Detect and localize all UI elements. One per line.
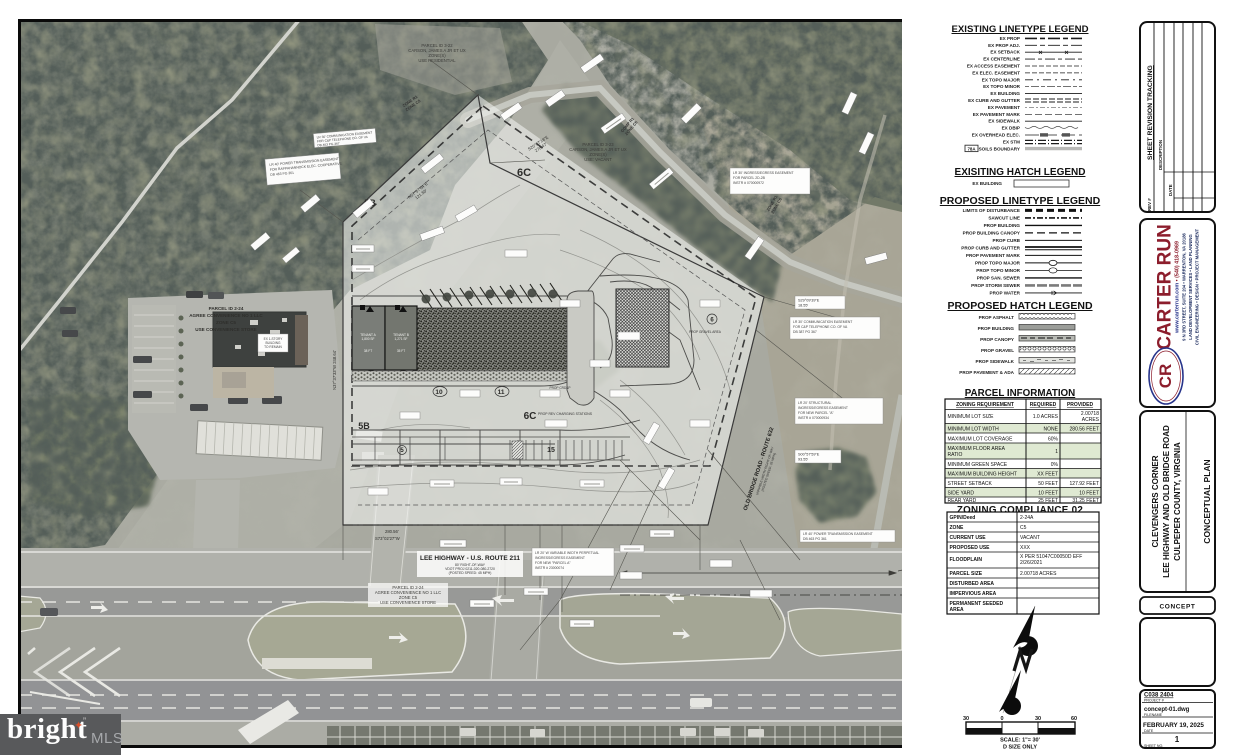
svg-text:PROP WATER: PROP WATER <box>990 291 1021 296</box>
svg-text:EX PROP: EX PROP <box>1000 36 1020 41</box>
svg-text:IMPERVIOUS AREA: IMPERVIOUS AREA <box>950 591 997 597</box>
svg-text:MINIMUM LOT SIZE: MINIMUM LOT SIZE <box>948 414 995 420</box>
svg-text:PROP CURB: PROP CURB <box>993 238 1021 243</box>
svg-text:www.carterrun.com • (540) 418-: www.carterrun.com • (540) 418-0969 <box>1175 241 1181 334</box>
svg-text:MINIMUM GREEN SPACE: MINIMUM GREEN SPACE <box>948 462 1008 468</box>
svg-text:10 FEET: 10 FEET <box>1079 491 1099 497</box>
svg-text:PROP STORM SEWER: PROP STORM SEWER <box>971 283 1021 288</box>
svg-text:SAWCUT LINE: SAWCUT LINE <box>988 216 1020 221</box>
svg-text:C5: C5 <box>1020 525 1027 531</box>
svg-text:2.00718 ACRES: 2.00718 ACRES <box>1020 571 1057 577</box>
svg-text:60: 60 <box>1071 716 1077 722</box>
svg-text:REQUIRED: REQUIRED <box>1030 402 1057 408</box>
svg-text:EX SETBACK: EX SETBACK <box>990 50 1020 55</box>
svg-text:PROP TOPO MAJOR: PROP TOPO MAJOR <box>975 261 1021 266</box>
svg-text:2/26/2021: 2/26/2021 <box>1020 560 1042 566</box>
svg-text:EX SIDEWALK: EX SIDEWALK <box>988 119 1020 124</box>
svg-text:MAXIMUM LOT COVERAGE: MAXIMUM LOT COVERAGE <box>948 437 1014 443</box>
svg-text:EX TOPO MINOR: EX TOPO MINOR <box>983 84 1021 89</box>
svg-text:PROP BUILDING: PROP BUILDING <box>978 326 1015 331</box>
svg-text:FILENAME: FILENAME <box>1144 713 1163 717</box>
svg-text:PROP ASPHALT: PROP ASPHALT <box>979 315 1015 320</box>
svg-text:2-24A: 2-24A <box>1020 515 1034 521</box>
svg-text:DATE: DATE <box>1144 729 1154 733</box>
svg-text:NONE: NONE <box>1044 427 1059 433</box>
svg-text:EX PAVEMENT MARK: EX PAVEMENT MARK <box>973 112 1021 117</box>
svg-text:PROP CANOPY: PROP CANOPY <box>980 337 1014 342</box>
svg-text:CURRENT USE: CURRENT USE <box>950 535 987 541</box>
svg-text:1: 1 <box>1055 449 1058 455</box>
svg-text:SCALE: 1"= 30': SCALE: 1"= 30' <box>1000 738 1041 744</box>
svg-text:XX FEET: XX FEET <box>1037 472 1058 478</box>
svg-text:EX CURB AND GUTTER: EX CURB AND GUTTER <box>968 98 1021 103</box>
svg-text:DESCRIPTION: DESCRIPTION <box>1158 140 1163 170</box>
svg-text:31.25 FEET: 31.25 FEET <box>1072 498 1099 504</box>
svg-text:0: 0 <box>1000 716 1003 722</box>
svg-text:XXX: XXX <box>1020 545 1031 551</box>
svg-text:EX ELEC. EASEMENT: EX ELEC. EASEMENT <box>972 70 1020 75</box>
svg-text:SIDE YARD: SIDE YARD <box>948 491 975 497</box>
svg-text:30: 30 <box>963 716 969 722</box>
svg-text:EX PROP ADJ.: EX PROP ADJ. <box>988 43 1020 48</box>
svg-text:0%: 0% <box>1051 462 1059 468</box>
svg-text:VACANT: VACANT <box>1020 535 1040 541</box>
svg-text:PARCEL SIZE: PARCEL SIZE <box>950 571 983 577</box>
svg-text:ZONING REQUIREMENT: ZONING REQUIREMENT <box>956 402 1014 408</box>
svg-text:60%: 60% <box>1048 437 1059 443</box>
svg-text:FLOODPLAIN: FLOODPLAIN <box>950 557 983 563</box>
svg-text:PROP CURB AND GUTTER: PROP CURB AND GUTTER <box>961 246 1020 251</box>
svg-text:EX TOPO MAJOR: EX TOPO MAJOR <box>982 77 1021 82</box>
svg-text:25 FEET: 25 FEET <box>1038 498 1058 504</box>
svg-text:DISTURBED AREA: DISTURBED AREA <box>950 581 995 587</box>
svg-text:STREET SETBACK: STREET SETBACK <box>948 481 993 487</box>
svg-text:SHEET REVISION TRACKING: SHEET REVISION TRACKING <box>1147 65 1154 160</box>
svg-text:30: 30 <box>1035 716 1041 722</box>
svg-text:PROJECT #: PROJECT # <box>1144 699 1164 703</box>
svg-text:PROP SIDEWALK: PROP SIDEWALK <box>976 359 1015 364</box>
svg-text:MAXIMUM BUILDING HEIGHT: MAXIMUM BUILDING HEIGHT <box>948 472 1017 478</box>
svg-text:EX OVERHEAD ELEC.: EX OVERHEAD ELEC. <box>972 133 1020 138</box>
svg-text:PROP PAVEMENT & ADA: PROP PAVEMENT & ADA <box>959 370 1014 375</box>
svg-text:PROP PAVEMENT MARK: PROP PAVEMENT MARK <box>966 253 1021 258</box>
svg-text:PROP BUILDING CANOPY: PROP BUILDING CANOPY <box>963 231 1020 236</box>
svg-text:1.0 ACRES: 1.0 ACRES <box>1033 414 1059 420</box>
svg-text:SHEET NO.: SHEET NO. <box>1144 744 1163 748</box>
svg-text:CARTER RUN: CARTER RUN <box>1155 224 1176 350</box>
svg-text:EX DBIP: EX DBIP <box>1002 126 1020 131</box>
svg-text:CULPEPER COUNTY, VIRGINIA: CULPEPER COUNTY, VIRGINIA <box>1173 442 1182 561</box>
svg-text:RATIO: RATIO <box>948 452 963 458</box>
svg-text:10 FEET: 10 FEET <box>1038 491 1058 497</box>
svg-text:PROVIDED: PROVIDED <box>1067 402 1094 408</box>
svg-text:ACRES: ACRES <box>1082 417 1100 423</box>
svg-text:CLEVENGERS CORNER: CLEVENGERS CORNER <box>1151 455 1160 547</box>
svg-text:REV #: REV # <box>1147 198 1152 211</box>
svg-text:EX BUILDING: EX BUILDING <box>990 91 1020 96</box>
svg-text:PROP GRAVEL: PROP GRAVEL <box>981 348 1014 353</box>
svg-text:PROPOSED USE: PROPOSED USE <box>950 545 991 551</box>
svg-text:GPIN/Deed: GPIN/Deed <box>950 515 976 521</box>
svg-text:CIVIL ENGINEERING • DESIGN • P: CIVIL ENGINEERING • DESIGN • PROJECT MAN… <box>1195 228 1200 345</box>
svg-text:FEBRUARY 19, 2025: FEBRUARY 19, 2025 <box>1143 722 1204 729</box>
svg-text:127.92 FEET: 127.92 FEET <box>1070 481 1099 487</box>
svg-text:CR: CR <box>1156 364 1175 389</box>
svg-text:EX PAVEMENT: EX PAVEMENT <box>988 105 1020 110</box>
svg-text:LEE HIGHWAY AND OLD BRIDGE ROA: LEE HIGHWAY AND OLD BRIDGE ROAD <box>1162 425 1171 578</box>
svg-text:CONCEPTUAL PLAN: CONCEPTUAL PLAN <box>1202 459 1212 543</box>
svg-text:REAR YARD: REAR YARD <box>948 498 977 504</box>
svg-text:EX STM: EX STM <box>1003 139 1020 144</box>
svg-text:MINIMUM LOT WIDTH: MINIMUM LOT WIDTH <box>948 427 1000 433</box>
svg-text:EX BUILDING: EX BUILDING <box>972 181 1002 186</box>
svg-text:CONCEPT: CONCEPT <box>1160 604 1196 611</box>
svg-text:EX ACCESS EASEMENT: EX ACCESS EASEMENT <box>967 64 1020 69</box>
svg-text:50 FEET: 50 FEET <box>1038 481 1058 487</box>
svg-text:LIMITS OF DISTURBANCE: LIMITS OF DISTURBANCE <box>963 208 1020 213</box>
svg-text:PROP SAN. SEWER: PROP SAN. SEWER <box>977 276 1021 281</box>
svg-text:78A: 78A <box>967 146 976 151</box>
svg-text:PROP BUILDING: PROP BUILDING <box>984 223 1021 228</box>
svg-text:280.56 FEET: 280.56 FEET <box>1070 427 1099 433</box>
svg-text:SOILS BOUNDARY: SOILS BOUNDARY <box>979 146 1020 151</box>
svg-text:LAND DEVELOPMENT SERVICES • LA: LAND DEVELOPMENT SERVICES • LAND PLANNIN… <box>1188 234 1193 339</box>
svg-text:9 N 3RD STREET, SUITE 204 • WA: 9 N 3RD STREET, SUITE 204 • WARRENTON, V… <box>1182 232 1187 340</box>
svg-text:EX CENTERLINE: EX CENTERLINE <box>983 57 1020 62</box>
svg-text:1: 1 <box>1175 735 1180 744</box>
svg-text:PROP TOPO MINOR: PROP TOPO MINOR <box>976 268 1020 273</box>
svg-text:ZONE: ZONE <box>950 525 965 531</box>
svg-text:D SIZE ONLY: D SIZE ONLY <box>1003 745 1037 751</box>
svg-text:DATE: DATE <box>1168 184 1173 196</box>
